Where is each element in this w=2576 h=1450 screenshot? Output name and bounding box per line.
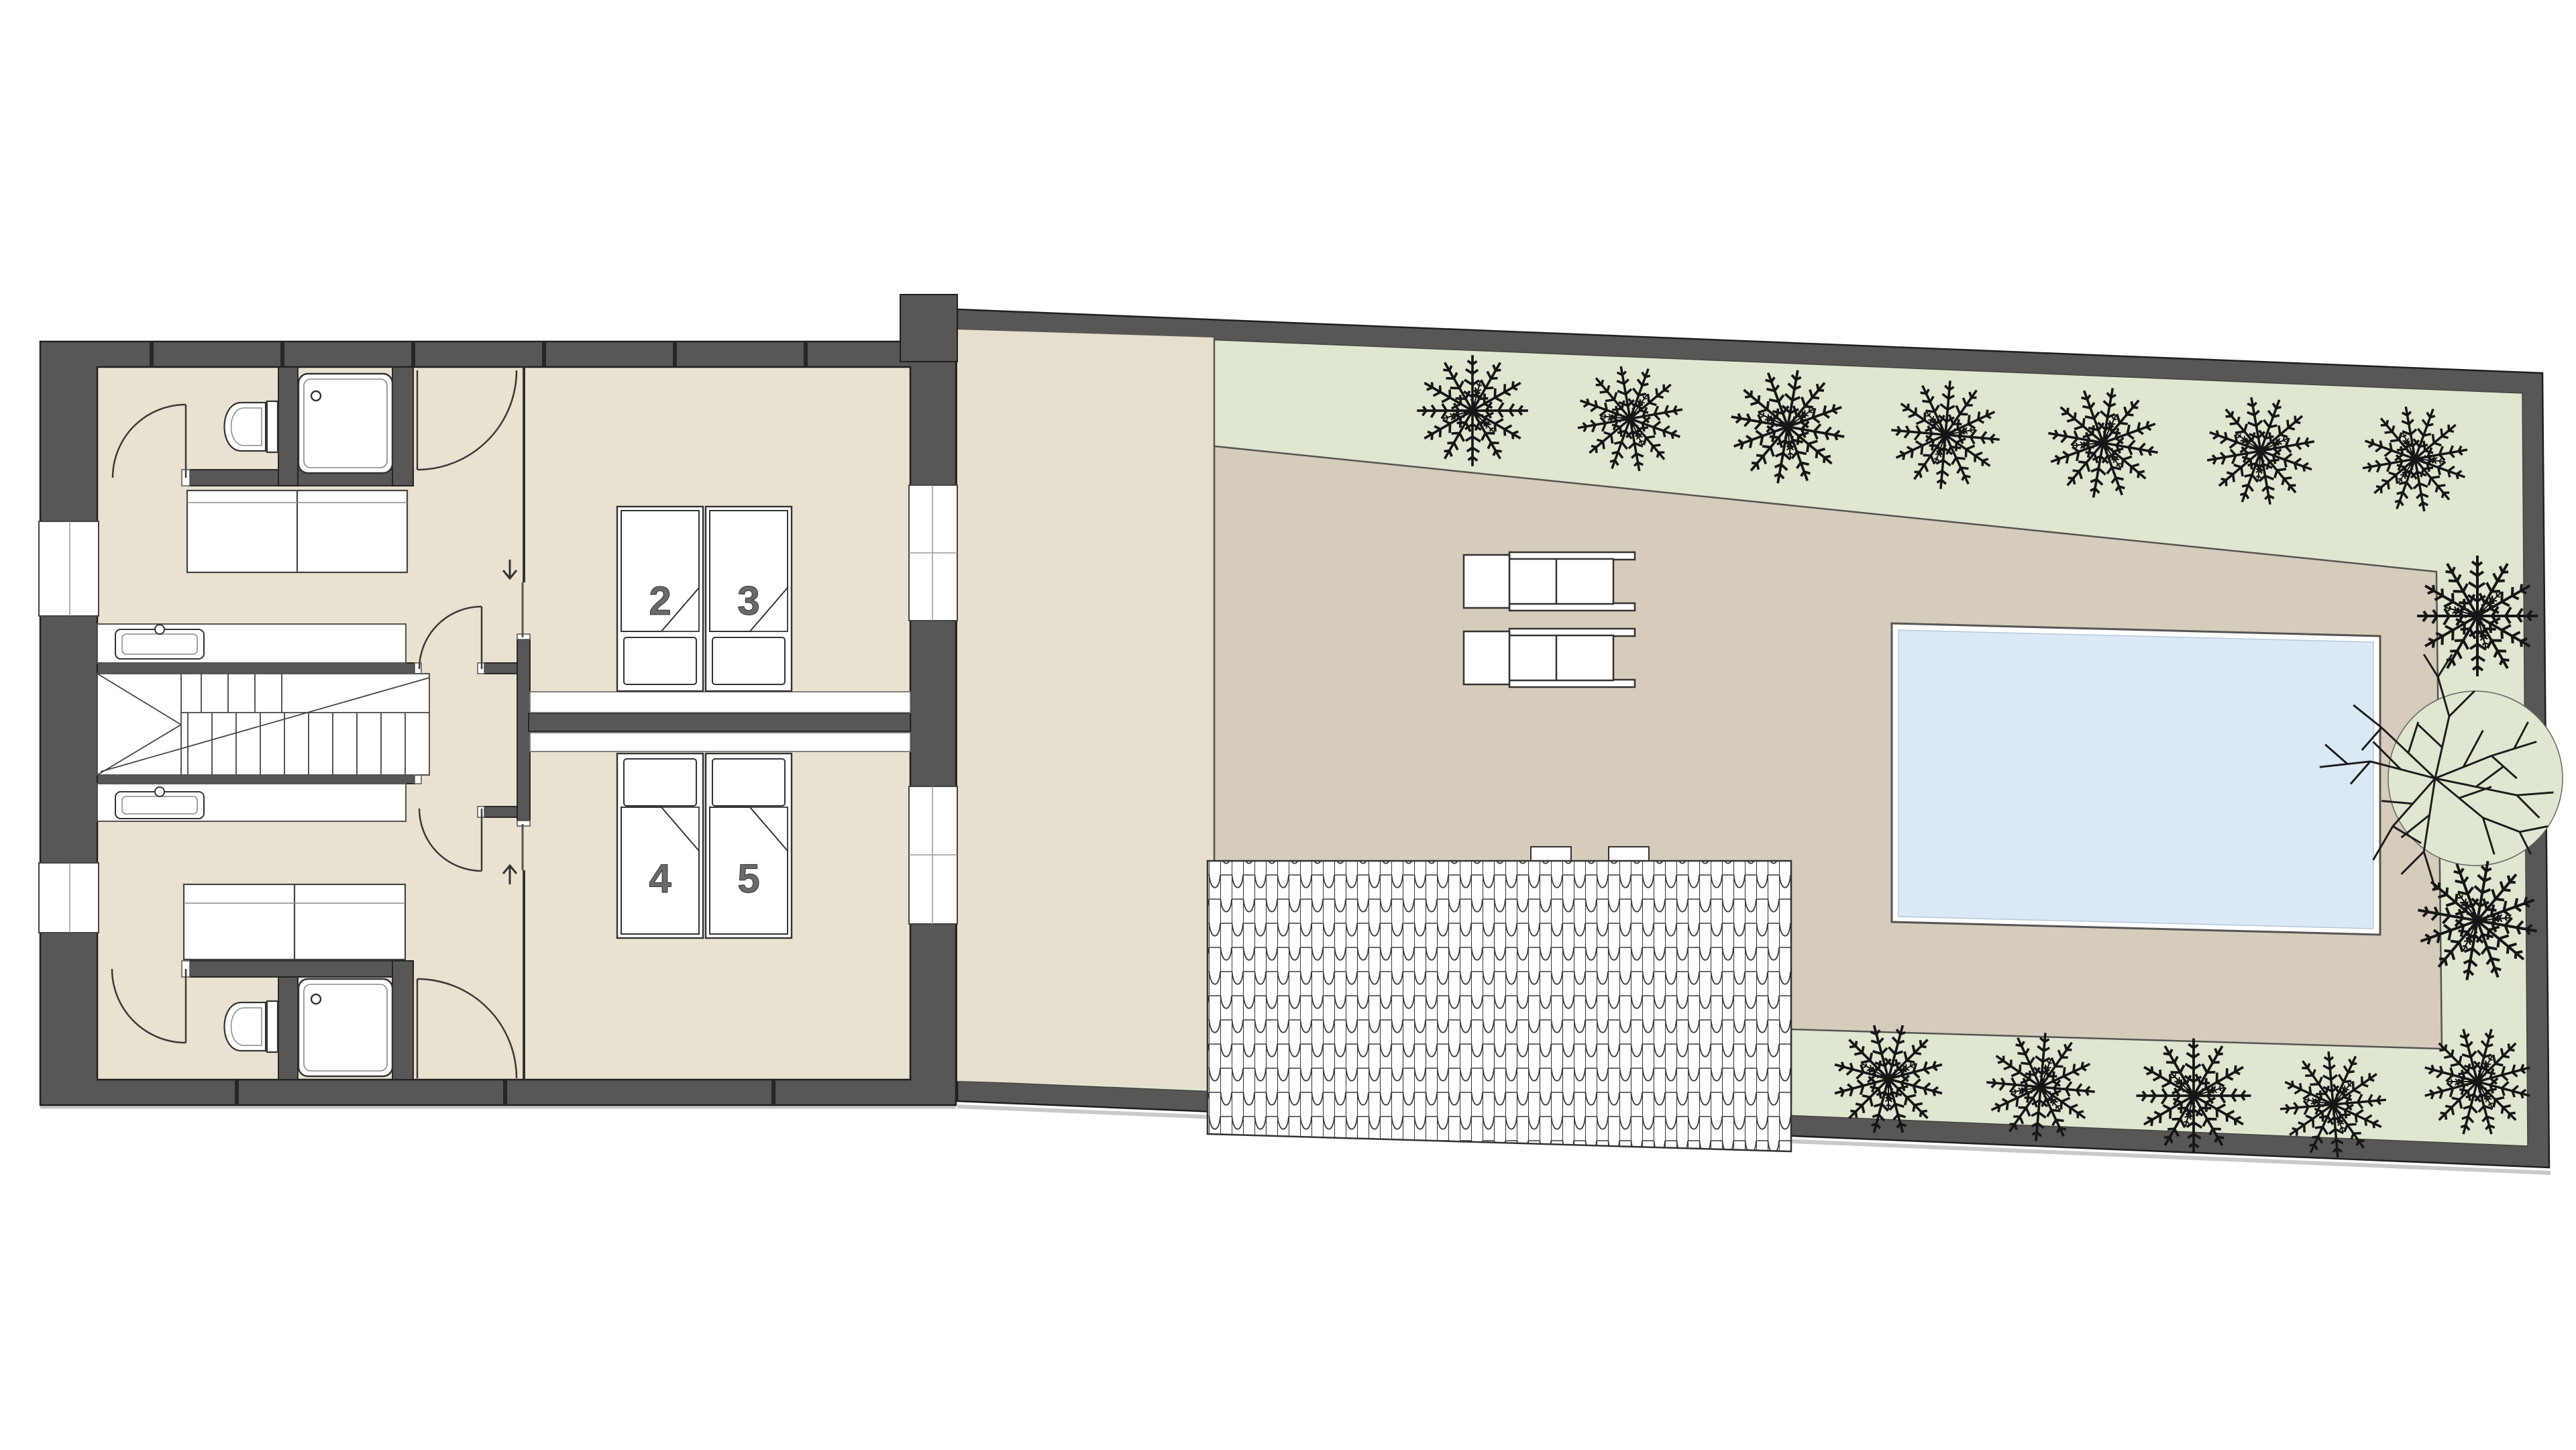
vanity-washbasin [97,784,406,821]
floor-plan-drawing: 2 3 4 5 [0,0,2576,1450]
vanity-washbasin [97,624,406,663]
pillow [624,637,696,684]
chimney [900,295,957,362]
tap-icon [155,625,164,634]
toilet-icon [225,1001,278,1052]
pillow [712,759,785,806]
window [909,786,957,924]
roof-terrace [957,309,2563,1175]
sun-lounger [1464,552,1635,611]
tap-icon [155,787,164,796]
staircase [97,674,429,775]
window [39,863,99,933]
shower-icon [299,374,392,473]
wardrobe [187,490,407,572]
bed-4-label: 4 [649,856,672,901]
floor-plan-viewport: 2 3 4 5 [0,0,2576,1450]
window [909,485,957,621]
tiled-roof-area [1207,847,1791,1151]
bed-2: 2 [617,507,703,691]
built-in-cabinet [530,733,910,752]
toilet-icon [225,401,278,452]
bed-5-label: 5 [737,856,759,901]
shower-icon [299,979,392,1076]
pillow [624,759,696,806]
built-in-cabinet [530,692,910,713]
pool-water [1898,630,2373,929]
wardrobe [184,884,405,960]
bed-2-label: 2 [649,578,671,623]
window [39,521,99,616]
bed-3-label: 3 [737,578,759,623]
house: 2 3 4 5 [39,295,957,1107]
bed-4: 4 [617,754,703,938]
sun-lounger [1464,629,1635,687]
walkway [957,329,1214,1088]
bed-3: 3 [706,507,792,691]
bed-5: 5 [706,754,792,938]
pillow [712,637,785,684]
pool [1892,623,2380,935]
